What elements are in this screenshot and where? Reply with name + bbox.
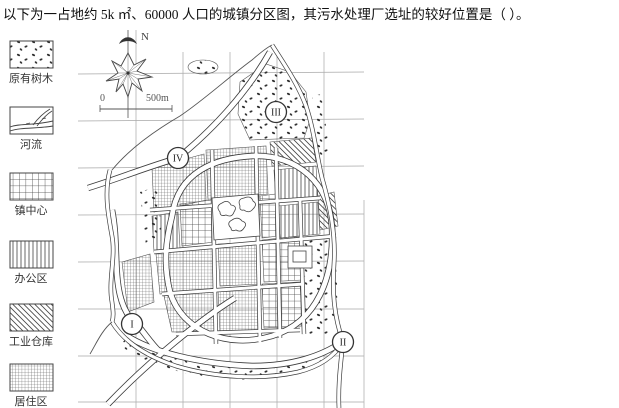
scale-start-label: 0 — [100, 93, 105, 104]
legend-item-trees: 原有树木 — [9, 41, 53, 85]
legend-item-office: 办公区 — [10, 241, 53, 285]
legend-item-town-center: 镇中心 — [10, 173, 53, 217]
svg-text:IV: IV — [173, 154, 184, 165]
site-marker-II: II — [333, 332, 354, 353]
legend-label: 工业仓库 — [9, 334, 53, 348]
svg-text:I: I — [130, 320, 133, 331]
legend-item-residential: 居住区 — [10, 364, 53, 408]
legend-label: 镇中心 — [15, 203, 48, 217]
stream-southwest — [90, 322, 112, 354]
legend-label: 办公区 — [15, 272, 48, 285]
zoning-map: I II III IV N — [0, 0, 619, 408]
site-marker-IV: IV — [168, 148, 189, 169]
svg-text:III: III — [271, 108, 281, 119]
map-legend: 原有树木 河流 镇中心 办公区 工业仓库 — [9, 41, 53, 408]
svg-text:II: II — [340, 338, 347, 349]
central-park — [212, 194, 260, 240]
legend-label: 河流 — [20, 137, 42, 151]
legend-label: 居住区 — [15, 394, 48, 408]
legend-label: 原有树木 — [9, 71, 53, 85]
zone-trees-nw — [188, 60, 218, 74]
scale-end-label: 500m — [146, 93, 169, 104]
north-label: N — [141, 31, 149, 43]
legend-item-industry: 工业仓库 — [9, 304, 53, 348]
zone-residential — [218, 288, 260, 332]
exam-question-figure: 以下为一占地约 5k ㎡、60000 人口的城镇分区图，其污水处理厂选址的较好位… — [0, 0, 619, 408]
zone-residential — [122, 254, 154, 312]
site-marker-I: I — [122, 314, 143, 335]
legend-item-river: 河流 — [10, 107, 53, 151]
facility-block — [288, 246, 312, 268]
zone-residential — [218, 242, 260, 286]
site-marker-III: III — [266, 102, 287, 123]
